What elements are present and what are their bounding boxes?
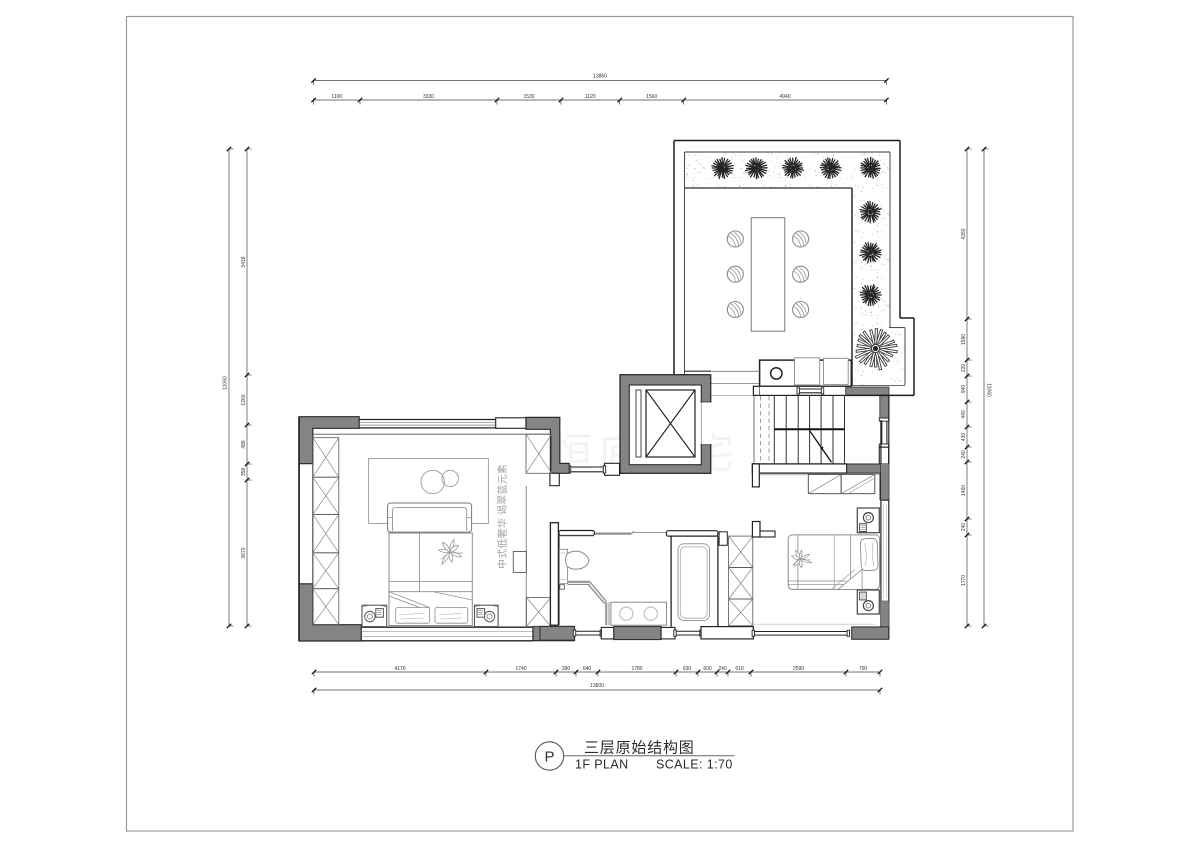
- svg-text:1740: 1740: [515, 666, 526, 672]
- svg-text:三层原始结构图: 三层原始结构图: [584, 740, 695, 757]
- svg-text:SCALE: 1:70: SCALE: 1:70: [656, 758, 733, 772]
- svg-text:13600: 13600: [590, 683, 604, 689]
- svg-text:中式低奢华 谒翠蓝元素: 中式低奢华 谒翠蓝元素: [496, 464, 509, 569]
- svg-text:1530: 1530: [523, 94, 534, 100]
- svg-text:358: 358: [241, 468, 247, 477]
- svg-text:1560: 1560: [646, 94, 657, 100]
- svg-text:600: 600: [703, 666, 712, 672]
- svg-text:4260: 4260: [961, 228, 967, 239]
- svg-text:11060: 11060: [986, 383, 992, 397]
- svg-text:630: 630: [683, 666, 692, 672]
- svg-text:P: P: [544, 749, 554, 766]
- svg-text:4940: 4940: [779, 94, 790, 100]
- svg-text:1100: 1100: [331, 94, 342, 100]
- svg-text:3418: 3418: [241, 256, 247, 267]
- svg-text:3330: 3330: [423, 94, 434, 100]
- svg-text:1460: 1460: [961, 485, 967, 496]
- svg-text:2590: 2590: [793, 666, 804, 672]
- svg-text:488: 488: [241, 440, 247, 449]
- svg-text:1780: 1780: [631, 666, 642, 672]
- svg-text:220: 220: [961, 364, 967, 373]
- svg-text:13860: 13860: [593, 74, 607, 80]
- svg-text:4170: 4170: [394, 666, 405, 672]
- svg-text:640: 640: [583, 666, 592, 672]
- svg-text:700: 700: [859, 666, 868, 672]
- svg-text:430: 430: [961, 433, 967, 442]
- svg-text:390: 390: [562, 666, 571, 672]
- svg-text:240: 240: [718, 666, 727, 672]
- svg-text:1120: 1120: [585, 94, 596, 100]
- svg-text:1260: 1260: [241, 394, 247, 405]
- svg-text:1590: 1590: [961, 334, 967, 345]
- svg-text:610: 610: [735, 666, 744, 672]
- svg-text:240: 240: [961, 523, 967, 532]
- svg-text:3670: 3670: [241, 547, 247, 558]
- svg-text:11060: 11060: [223, 376, 229, 390]
- svg-text:440: 440: [961, 410, 967, 419]
- svg-text:1770: 1770: [961, 575, 967, 586]
- svg-text:240: 240: [961, 450, 967, 459]
- svg-text:1F PLAN: 1F PLAN: [575, 758, 629, 772]
- svg-text:940: 940: [961, 385, 967, 394]
